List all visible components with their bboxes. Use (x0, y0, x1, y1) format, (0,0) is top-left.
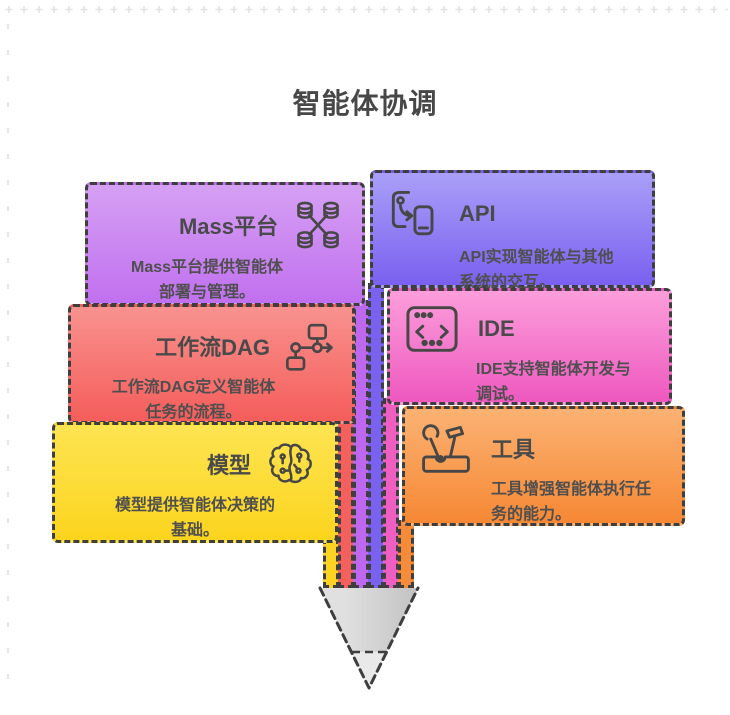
card-title-model: 模型 (207, 448, 251, 480)
left-edge-dashes-decoration (7, 24, 9, 684)
card-desc-workflow-dag: 工作流DAG定义智能体 任务的流程。 (85, 375, 338, 425)
device-transfer-icon (387, 186, 441, 242)
card-desc-tool: 工具增强智能体执行任 务的能力。 (491, 477, 668, 527)
card-mass-platform: Mass平台 (85, 182, 365, 306)
card-api: API API实现智能体与其他 系统的交互。 (370, 170, 655, 288)
stripe-tool (398, 520, 414, 588)
plus-grid-decoration (2, 3, 728, 16)
workflow-dag-icon (284, 321, 334, 371)
infographic-canvas: 智能体协调 Mass平台 (0, 0, 730, 715)
card-title-api: API (459, 201, 496, 227)
card-title-workflow-dag: 工作流DAG (155, 330, 270, 362)
stripe-mass-platform (353, 300, 369, 588)
stripe-model (323, 538, 339, 588)
card-ide: IDE IDE支持智能体开发与 调试。 (387, 288, 672, 405)
card-model: 模型 模型提供智 (52, 422, 338, 543)
brain-icon (265, 439, 317, 489)
card-title-tool: 工具 (491, 432, 535, 464)
card-desc-mass: Mass平台提供智能体 部署与管理。 (102, 255, 348, 305)
toolbox-icon (419, 422, 473, 474)
stripe-ide (383, 398, 399, 588)
page-title: 智能体协调 (0, 82, 730, 122)
stripe-api (368, 283, 384, 588)
card-tool: 工具 工具增强智能体执行任 务的能力。 (402, 406, 685, 526)
card-desc-ide: IDE支持智能体开发与 调试。 (476, 357, 655, 407)
stripe-workflow-dag (338, 418, 354, 588)
code-editor-icon (404, 304, 460, 354)
card-desc-model: 模型提供智能体决策的 基础。 (69, 493, 321, 543)
pencil-tip (312, 586, 428, 694)
pencil-lead (352, 652, 386, 688)
card-workflow-dag: 工作流DAG 工作流DAG定义智能体 (68, 304, 355, 424)
card-title-ide: IDE (478, 316, 515, 342)
card-title-mass: Mass平台 (179, 209, 278, 241)
database-cluster-icon (292, 199, 344, 251)
